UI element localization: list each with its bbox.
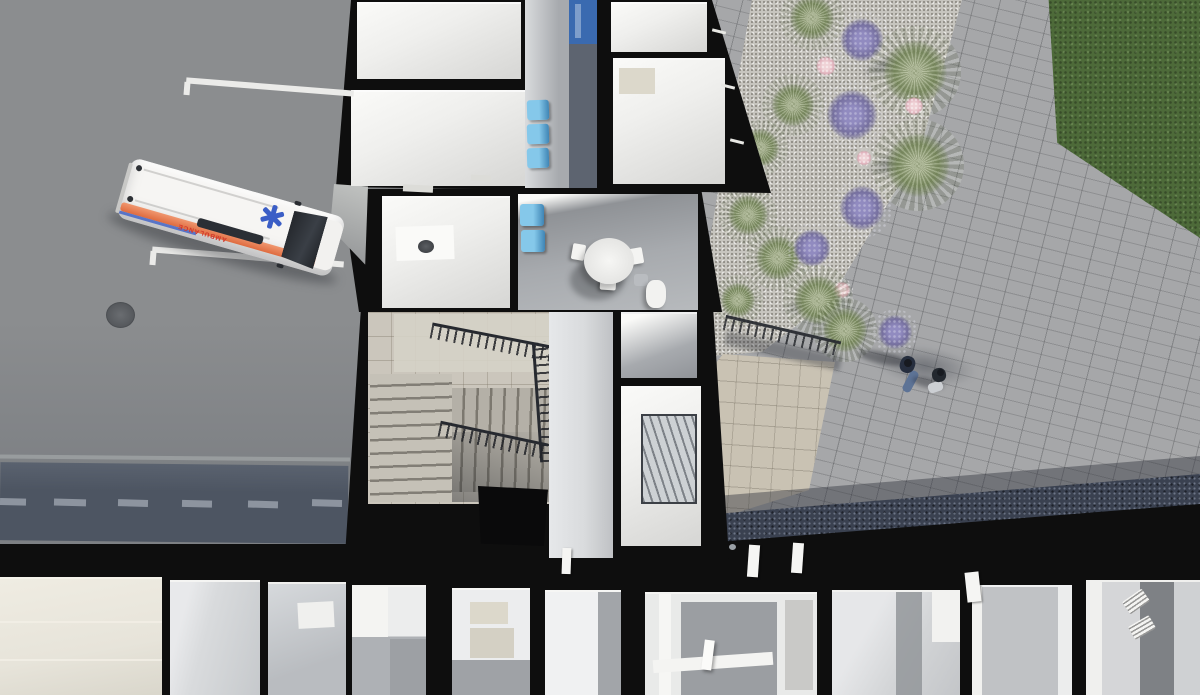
- exam-room: [351, 90, 527, 186]
- door-leaf: [562, 548, 572, 574]
- counter: [470, 628, 514, 658]
- ward-room: [972, 585, 1072, 695]
- interior-wall: [1086, 582, 1102, 695]
- canopy-skylight-dash: [0, 498, 26, 506]
- interior-wall: [1058, 587, 1072, 695]
- interior-wall: [659, 594, 671, 695]
- waiting-room: [518, 194, 698, 310]
- sink: [418, 240, 434, 253]
- treatment-room: [382, 196, 510, 308]
- ward-room: [1086, 580, 1200, 695]
- exam-room: [611, 2, 707, 52]
- manhole-cover: [106, 302, 135, 328]
- waiting-chair: [527, 148, 550, 169]
- canopy-skylight-dash: [312, 499, 342, 507]
- wall-fixture-dot: [729, 544, 736, 550]
- waiting-chair: [527, 124, 550, 145]
- cabinet-white: [297, 601, 334, 629]
- plant-lavender: [872, 309, 918, 355]
- floor-patch: [452, 660, 530, 695]
- stairwell-room: [368, 312, 560, 504]
- plant-lavender: [818, 81, 886, 149]
- waiting-chair: [520, 204, 544, 226]
- ward-room: [268, 582, 346, 695]
- scene-render: AMBULANCE: [0, 0, 1200, 695]
- door-opening: [403, 184, 433, 193]
- floor-patch: [390, 639, 426, 695]
- canopy-skylight-dash: [54, 498, 86, 506]
- wall-face: [352, 587, 388, 637]
- corridor: [545, 590, 621, 695]
- door-opening: [471, 174, 491, 181]
- corridor: [549, 312, 613, 558]
- door-leaf: [791, 543, 804, 574]
- cabinet-highlight: [575, 4, 581, 38]
- door-leaf: [747, 545, 760, 578]
- shower-room: [621, 386, 701, 546]
- wall-face: [932, 592, 960, 642]
- entrance-canopy-roof: [0, 462, 348, 544]
- elevator-shaft-opening: [478, 486, 548, 546]
- counter: [470, 602, 508, 624]
- ward-room: [0, 577, 162, 695]
- exam-room: [357, 2, 521, 79]
- wall-joint-line: [0, 659, 162, 661]
- wall-face: [785, 600, 813, 690]
- floor-patch: [896, 592, 922, 695]
- ward-room: [352, 585, 426, 695]
- utility-room: [621, 312, 697, 378]
- canopy-skylight-dash: [182, 500, 212, 508]
- exam-room: [613, 58, 725, 184]
- wall-face: [1174, 582, 1200, 695]
- door-leaf: [964, 571, 981, 602]
- room-rug: [619, 68, 655, 94]
- plant-pink-flowers: [813, 53, 839, 79]
- floor-patch: [681, 602, 777, 695]
- waiting-chair: [527, 100, 550, 121]
- pedestrian: [924, 362, 958, 402]
- parking-line-cap: [149, 251, 156, 265]
- plant-pink-flowers: [902, 94, 926, 118]
- pedestrian-head: [937, 369, 944, 376]
- canopy-skylight-dash: [248, 501, 278, 509]
- ward-room: [452, 588, 530, 695]
- corridor-wall-cabinet: [569, 0, 597, 188]
- glass-block-shower: [641, 414, 697, 504]
- interior-wall: [972, 587, 982, 695]
- parking-line-cap: [183, 82, 190, 95]
- ward-room: [832, 590, 960, 695]
- wall-joint-line: [0, 621, 162, 623]
- ward-room: [645, 592, 817, 695]
- stool: [634, 274, 648, 286]
- pedestrian-legs: [927, 380, 944, 394]
- plant-pink-flowers: [854, 148, 874, 168]
- ward-room: [170, 580, 260, 695]
- staircase-lower-flight: [370, 374, 452, 502]
- canopy-skylight-dash: [118, 499, 148, 507]
- water-cooler: [646, 280, 666, 308]
- plant-lavender: [832, 178, 892, 238]
- waiting-chair: [521, 230, 545, 252]
- round-table: [584, 238, 634, 284]
- pedestrian-head: [904, 359, 912, 367]
